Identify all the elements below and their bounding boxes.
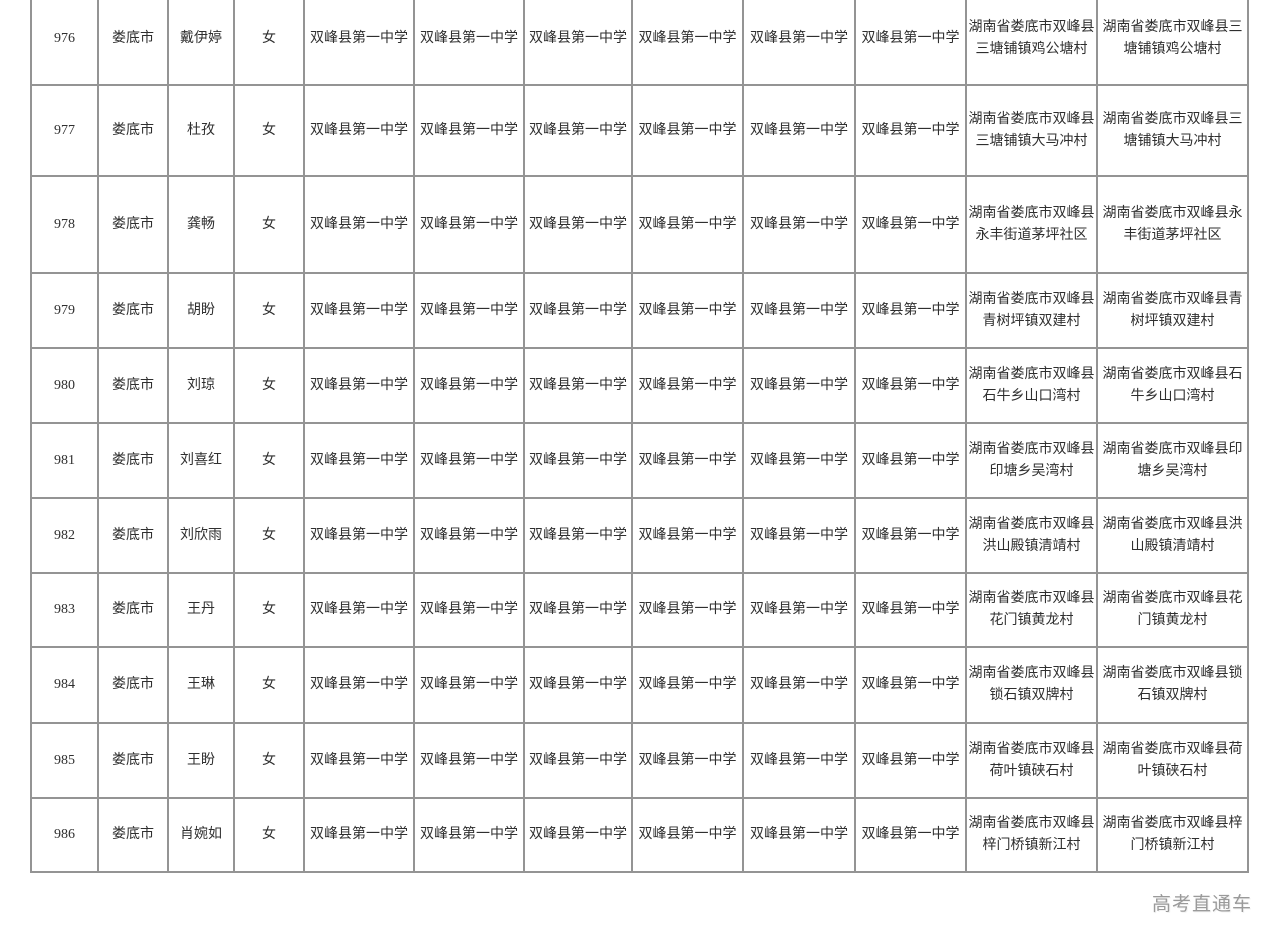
cell-school-5: 双峰县第一中学 — [743, 0, 855, 85]
cell-school-2: 双峰县第一中学 — [414, 573, 524, 647]
cell-gender: 女 — [234, 423, 304, 498]
table-row: 983娄底市王丹女双峰县第一中学双峰县第一中学双峰县第一中学双峰县第一中学双峰县… — [31, 573, 1248, 647]
cell-school-5: 双峰县第一中学 — [743, 348, 855, 423]
cell-address-1: 湖南省娄底市双峰县印塘乡吴湾村 — [966, 423, 1097, 498]
cell-city: 娄底市 — [98, 423, 168, 498]
cell-school-2: 双峰县第一中学 — [414, 85, 524, 176]
cell-address-1: 湖南省娄底市双峰县三塘铺镇大马冲村 — [966, 85, 1097, 176]
cell-school-3: 双峰县第一中学 — [524, 176, 632, 273]
cell-school-3: 双峰县第一中学 — [524, 273, 632, 348]
cell-school-3: 双峰县第一中学 — [524, 348, 632, 423]
cell-school-1: 双峰县第一中学 — [304, 85, 414, 176]
cell-school-2: 双峰县第一中学 — [414, 423, 524, 498]
student-table: 976娄底市戴伊婷女双峰县第一中学双峰县第一中学双峰县第一中学双峰县第一中学双峰… — [30, 0, 1249, 873]
table-row: 979娄底市胡盼女双峰县第一中学双峰县第一中学双峰县第一中学双峰县第一中学双峰县… — [31, 273, 1248, 348]
table-row: 977娄底市杜孜女双峰县第一中学双峰县第一中学双峰县第一中学双峰县第一中学双峰县… — [31, 85, 1248, 176]
cell-name: 肖婉如 — [168, 798, 234, 872]
cell-school-6: 双峰县第一中学 — [855, 723, 966, 798]
cell-school-3: 双峰县第一中学 — [524, 0, 632, 85]
cell-school-6: 双峰县第一中学 — [855, 0, 966, 85]
cell-school-1: 双峰县第一中学 — [304, 647, 414, 723]
cell-school-2: 双峰县第一中学 — [414, 498, 524, 573]
student-table-wrap: 976娄底市戴伊婷女双峰县第一中学双峰县第一中学双峰县第一中学双峰县第一中学双峰… — [30, 0, 1249, 873]
cell-address-2: 湖南省娄底市双峰县荷叶镇硖石村 — [1097, 723, 1248, 798]
cell-no: 976 — [31, 0, 98, 85]
cell-school-2: 双峰县第一中学 — [414, 176, 524, 273]
cell-no: 980 — [31, 348, 98, 423]
cell-no: 982 — [31, 498, 98, 573]
cell-school-4: 双峰县第一中学 — [632, 176, 743, 273]
cell-school-5: 双峰县第一中学 — [743, 573, 855, 647]
cell-gender: 女 — [234, 723, 304, 798]
cell-school-2: 双峰县第一中学 — [414, 798, 524, 872]
cell-address-2: 湖南省娄底市双峰县洪山殿镇清靖村 — [1097, 498, 1248, 573]
cell-school-4: 双峰县第一中学 — [632, 0, 743, 85]
cell-address-1: 湖南省娄底市双峰县荷叶镇硖石村 — [966, 723, 1097, 798]
cell-school-2: 双峰县第一中学 — [414, 273, 524, 348]
cell-school-1: 双峰县第一中学 — [304, 176, 414, 273]
cell-school-6: 双峰县第一中学 — [855, 798, 966, 872]
cell-school-6: 双峰县第一中学 — [855, 176, 966, 273]
cell-name: 刘琼 — [168, 348, 234, 423]
cell-no: 979 — [31, 273, 98, 348]
table-row: 980娄底市刘琼女双峰县第一中学双峰县第一中学双峰县第一中学双峰县第一中学双峰县… — [31, 348, 1248, 423]
cell-school-5: 双峰县第一中学 — [743, 85, 855, 176]
cell-address-1: 湖南省娄底市双峰县锁石镇双牌村 — [966, 647, 1097, 723]
cell-address-2: 湖南省娄底市双峰县三塘铺镇大马冲村 — [1097, 85, 1248, 176]
cell-city: 娄底市 — [98, 176, 168, 273]
table-row: 978娄底市龚畅女双峰县第一中学双峰县第一中学双峰县第一中学双峰县第一中学双峰县… — [31, 176, 1248, 273]
cell-school-4: 双峰县第一中学 — [632, 573, 743, 647]
cell-no: 986 — [31, 798, 98, 872]
cell-address-1: 湖南省娄底市双峰县石牛乡山口湾村 — [966, 348, 1097, 423]
cell-school-3: 双峰县第一中学 — [524, 85, 632, 176]
cell-address-2: 湖南省娄底市双峰县永丰街道茅坪社区 — [1097, 176, 1248, 273]
cell-school-4: 双峰县第一中学 — [632, 723, 743, 798]
cell-city: 娄底市 — [98, 273, 168, 348]
cell-name: 戴伊婷 — [168, 0, 234, 85]
watermark: 高考直通车 — [1152, 889, 1252, 916]
cell-school-6: 双峰县第一中学 — [855, 273, 966, 348]
cell-city: 娄底市 — [98, 723, 168, 798]
cell-school-4: 双峰县第一中学 — [632, 498, 743, 573]
cell-name: 刘喜红 — [168, 423, 234, 498]
cell-address-2: 湖南省娄底市双峰县花门镇黄龙村 — [1097, 573, 1248, 647]
cell-address-1: 湖南省娄底市双峰县花门镇黄龙村 — [966, 573, 1097, 647]
cell-address-1: 湖南省娄底市双峰县洪山殿镇清靖村 — [966, 498, 1097, 573]
table-row: 981娄底市刘喜红女双峰县第一中学双峰县第一中学双峰县第一中学双峰县第一中学双峰… — [31, 423, 1248, 498]
cell-school-6: 双峰县第一中学 — [855, 647, 966, 723]
cell-school-2: 双峰县第一中学 — [414, 723, 524, 798]
cell-school-5: 双峰县第一中学 — [743, 647, 855, 723]
cell-school-3: 双峰县第一中学 — [524, 498, 632, 573]
cell-no: 983 — [31, 573, 98, 647]
table-row: 982娄底市刘欣雨女双峰县第一中学双峰县第一中学双峰县第一中学双峰县第一中学双峰… — [31, 498, 1248, 573]
cell-school-4: 双峰县第一中学 — [632, 798, 743, 872]
cell-gender: 女 — [234, 647, 304, 723]
cell-address-2: 湖南省娄底市双峰县印塘乡吴湾村 — [1097, 423, 1248, 498]
cell-school-5: 双峰县第一中学 — [743, 423, 855, 498]
cell-address-2: 湖南省娄底市双峰县锁石镇双牌村 — [1097, 647, 1248, 723]
cell-gender: 女 — [234, 573, 304, 647]
cell-name: 胡盼 — [168, 273, 234, 348]
cell-school-2: 双峰县第一中学 — [414, 647, 524, 723]
cell-school-3: 双峰县第一中学 — [524, 798, 632, 872]
cell-address-1: 湖南省娄底市双峰县永丰街道茅坪社区 — [966, 176, 1097, 273]
cell-school-6: 双峰县第一中学 — [855, 573, 966, 647]
cell-no: 985 — [31, 723, 98, 798]
cell-school-6: 双峰县第一中学 — [855, 348, 966, 423]
cell-no: 981 — [31, 423, 98, 498]
cell-school-4: 双峰县第一中学 — [632, 348, 743, 423]
cell-name: 杜孜 — [168, 85, 234, 176]
cell-school-1: 双峰县第一中学 — [304, 573, 414, 647]
cell-school-6: 双峰县第一中学 — [855, 423, 966, 498]
page: { "table": { "school_columns": 6, "rows"… — [0, 0, 1280, 943]
table-row: 986娄底市肖婉如女双峰县第一中学双峰县第一中学双峰县第一中学双峰县第一中学双峰… — [31, 798, 1248, 872]
cell-gender: 女 — [234, 176, 304, 273]
cell-school-1: 双峰县第一中学 — [304, 273, 414, 348]
cell-gender: 女 — [234, 273, 304, 348]
cell-name: 龚畅 — [168, 176, 234, 273]
cell-address-1: 湖南省娄底市双峰县青树坪镇双建村 — [966, 273, 1097, 348]
cell-name: 王盼 — [168, 723, 234, 798]
cell-name: 王琳 — [168, 647, 234, 723]
cell-school-3: 双峰县第一中学 — [524, 423, 632, 498]
cell-name: 刘欣雨 — [168, 498, 234, 573]
cell-city: 娄底市 — [98, 348, 168, 423]
cell-gender: 女 — [234, 348, 304, 423]
cell-school-5: 双峰县第一中学 — [743, 498, 855, 573]
cell-school-1: 双峰县第一中学 — [304, 723, 414, 798]
cell-school-2: 双峰县第一中学 — [414, 0, 524, 85]
cell-school-4: 双峰县第一中学 — [632, 85, 743, 176]
cell-school-5: 双峰县第一中学 — [743, 273, 855, 348]
cell-school-3: 双峰县第一中学 — [524, 723, 632, 798]
cell-address-2: 湖南省娄底市双峰县青树坪镇双建村 — [1097, 273, 1248, 348]
cell-school-1: 双峰县第一中学 — [304, 0, 414, 85]
cell-name: 王丹 — [168, 573, 234, 647]
student-table-body: 976娄底市戴伊婷女双峰县第一中学双峰县第一中学双峰县第一中学双峰县第一中学双峰… — [31, 0, 1248, 872]
cell-school-4: 双峰县第一中学 — [632, 423, 743, 498]
cell-gender: 女 — [234, 498, 304, 573]
cell-address-2: 湖南省娄底市双峰县梓门桥镇新江村 — [1097, 798, 1248, 872]
cell-school-5: 双峰县第一中学 — [743, 176, 855, 273]
cell-school-5: 双峰县第一中学 — [743, 723, 855, 798]
table-row: 985娄底市王盼女双峰县第一中学双峰县第一中学双峰县第一中学双峰县第一中学双峰县… — [31, 723, 1248, 798]
cell-school-4: 双峰县第一中学 — [632, 273, 743, 348]
cell-address-2: 湖南省娄底市双峰县石牛乡山口湾村 — [1097, 348, 1248, 423]
cell-school-6: 双峰县第一中学 — [855, 498, 966, 573]
cell-no: 984 — [31, 647, 98, 723]
cell-city: 娄底市 — [98, 498, 168, 573]
cell-city: 娄底市 — [98, 798, 168, 872]
cell-school-1: 双峰县第一中学 — [304, 423, 414, 498]
cell-city: 娄底市 — [98, 0, 168, 85]
cell-school-5: 双峰县第一中学 — [743, 798, 855, 872]
cell-address-1: 湖南省娄底市双峰县三塘铺镇鸡公塘村 — [966, 0, 1097, 85]
cell-no: 978 — [31, 176, 98, 273]
cell-city: 娄底市 — [98, 647, 168, 723]
cell-gender: 女 — [234, 0, 304, 85]
cell-school-4: 双峰县第一中学 — [632, 647, 743, 723]
cell-school-3: 双峰县第一中学 — [524, 573, 632, 647]
cell-address-2: 湖南省娄底市双峰县三塘铺镇鸡公塘村 — [1097, 0, 1248, 85]
table-row: 976娄底市戴伊婷女双峰县第一中学双峰县第一中学双峰县第一中学双峰县第一中学双峰… — [31, 0, 1248, 85]
cell-school-1: 双峰县第一中学 — [304, 798, 414, 872]
cell-school-3: 双峰县第一中学 — [524, 647, 632, 723]
cell-city: 娄底市 — [98, 85, 168, 176]
cell-no: 977 — [31, 85, 98, 176]
cell-city: 娄底市 — [98, 573, 168, 647]
cell-address-1: 湖南省娄底市双峰县梓门桥镇新江村 — [966, 798, 1097, 872]
cell-school-1: 双峰县第一中学 — [304, 348, 414, 423]
cell-gender: 女 — [234, 798, 304, 872]
cell-gender: 女 — [234, 85, 304, 176]
cell-school-2: 双峰县第一中学 — [414, 348, 524, 423]
cell-school-6: 双峰县第一中学 — [855, 85, 966, 176]
table-row: 984娄底市王琳女双峰县第一中学双峰县第一中学双峰县第一中学双峰县第一中学双峰县… — [31, 647, 1248, 723]
cell-school-1: 双峰县第一中学 — [304, 498, 414, 573]
